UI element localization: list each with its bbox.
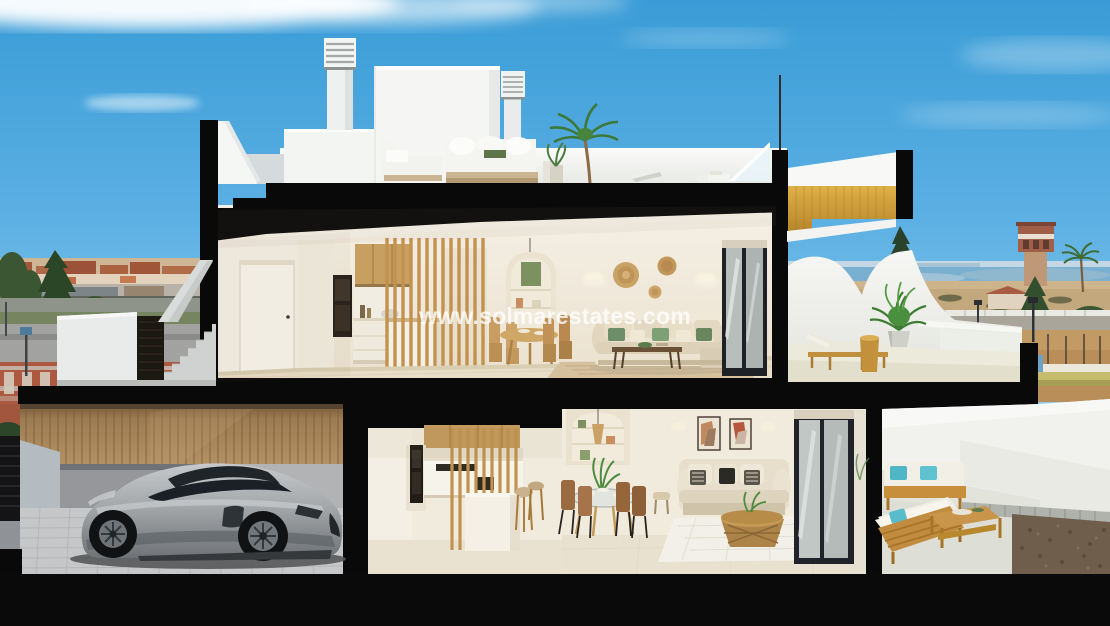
svg-text:www.solmarestates.com: www.solmarestates.com	[418, 303, 691, 329]
